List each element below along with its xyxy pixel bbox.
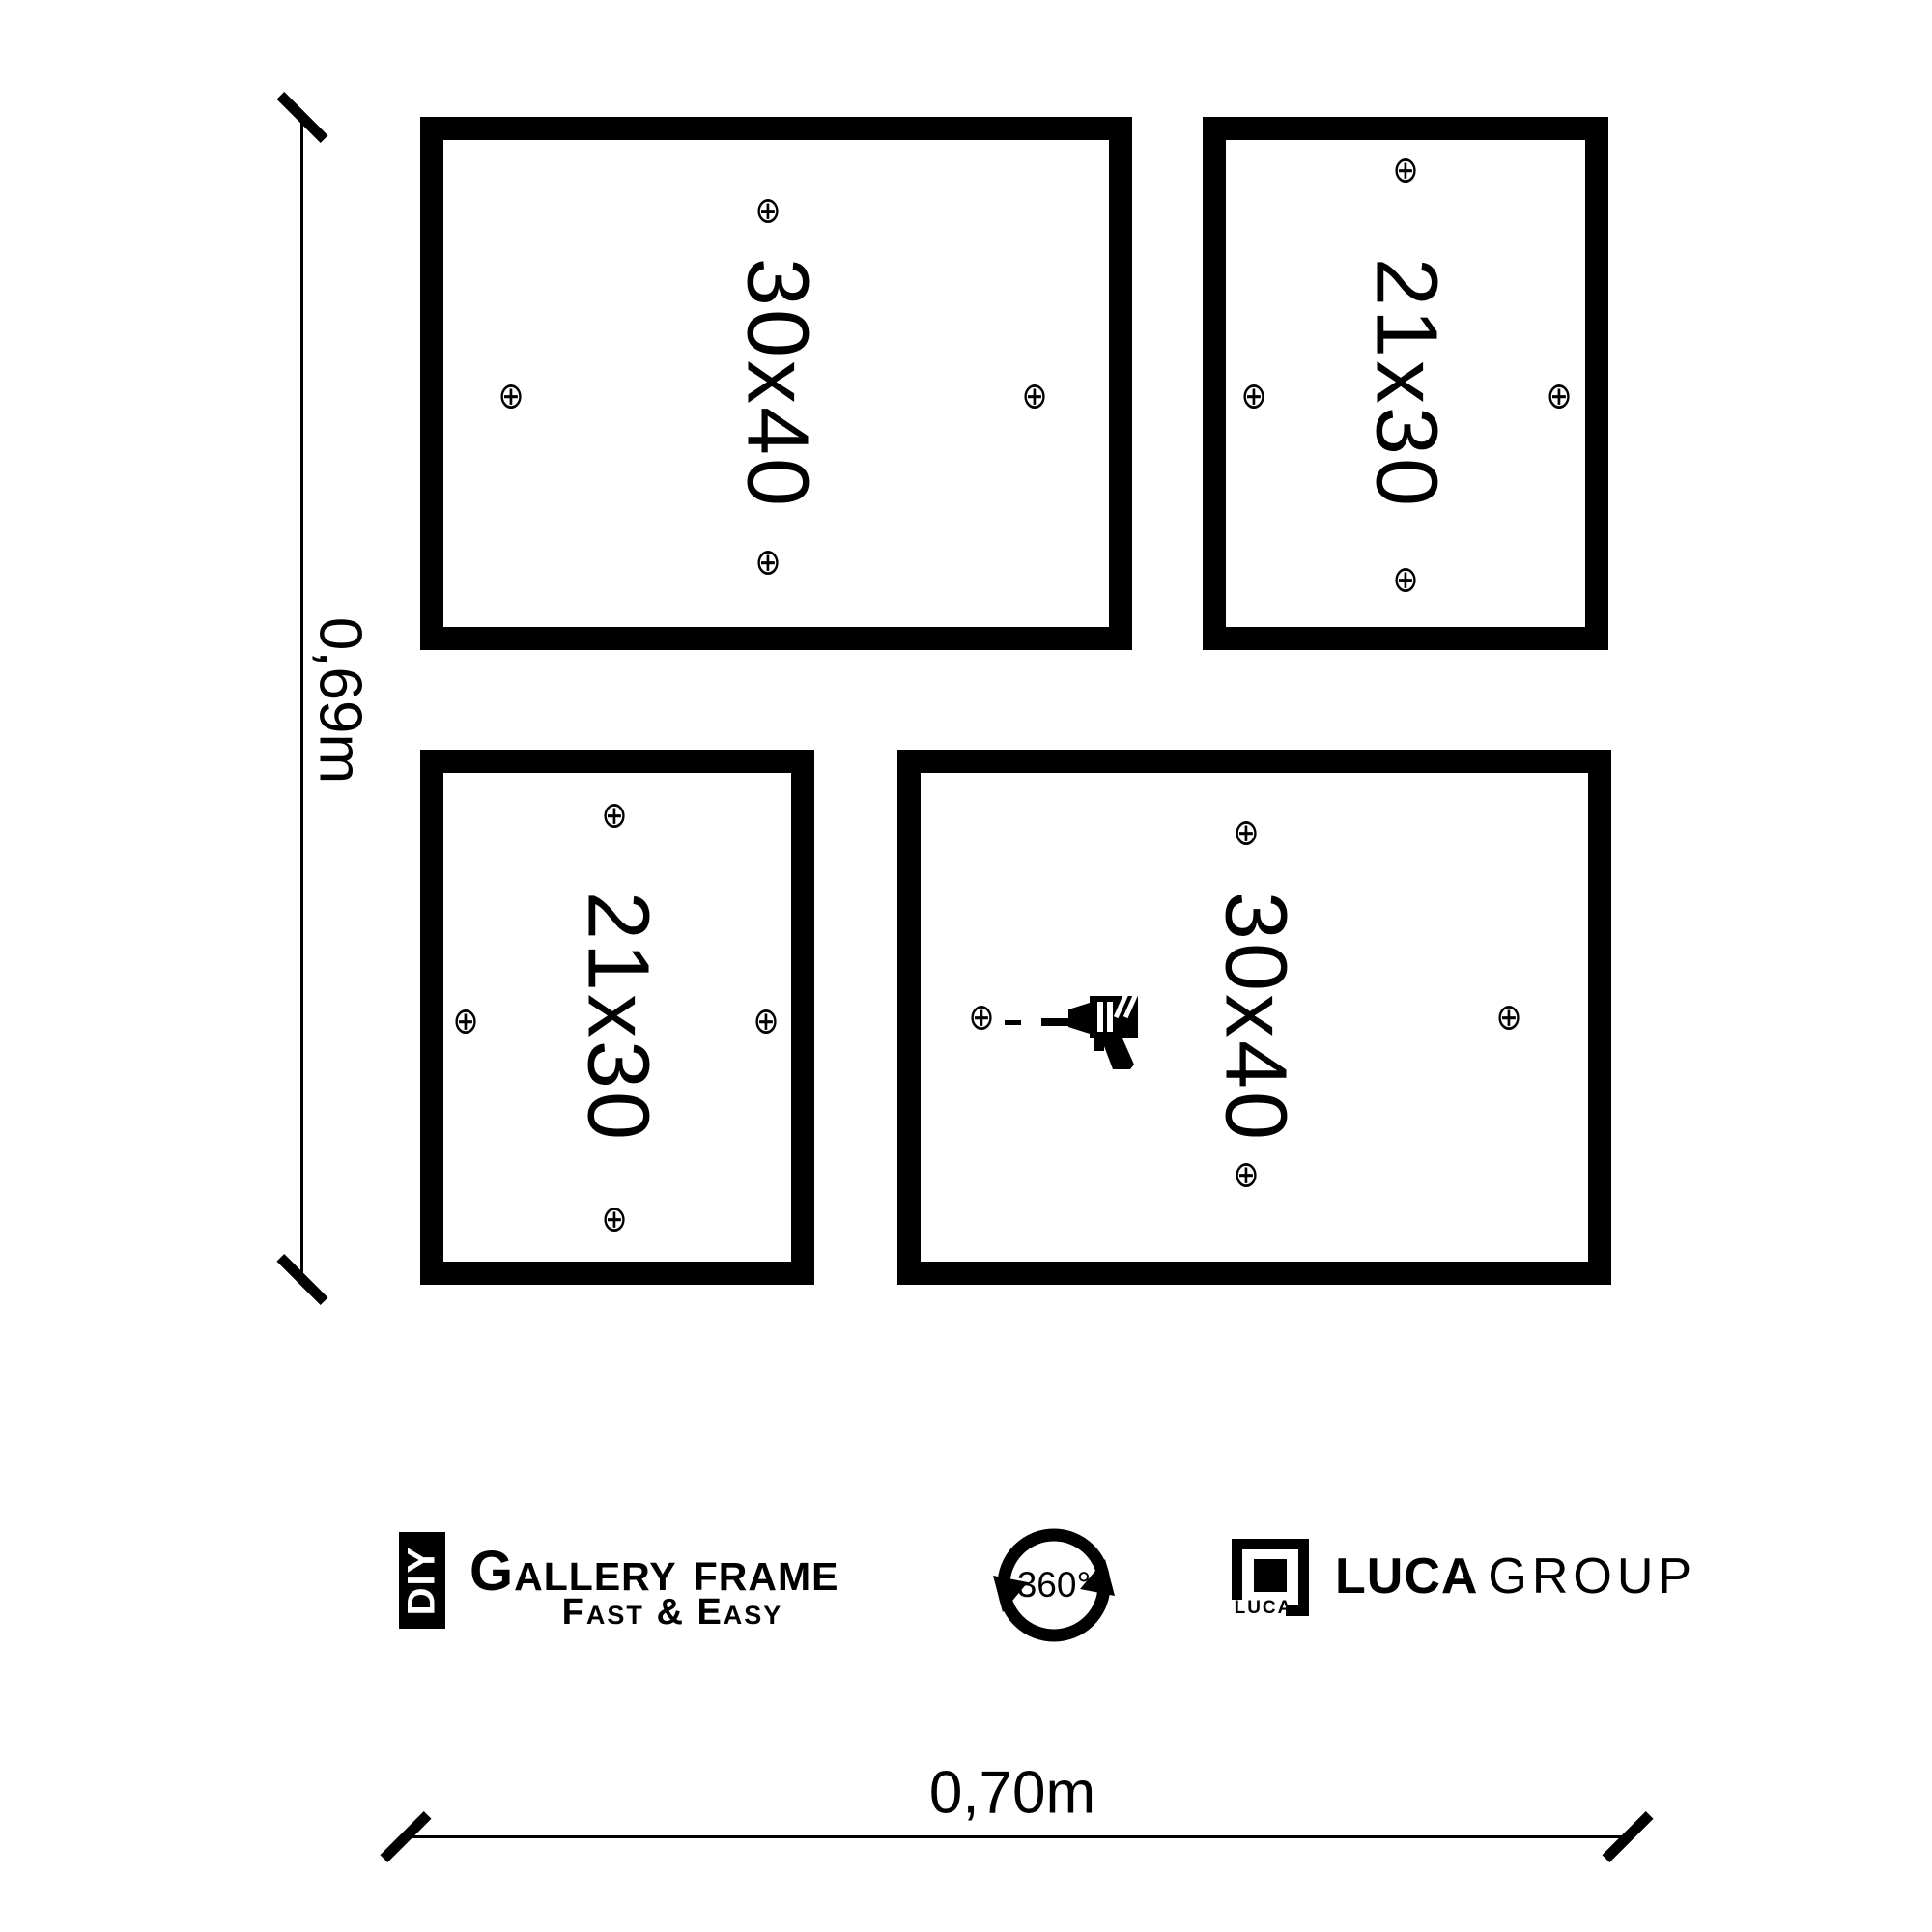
gallery-frame-layout-diagram: 0,69m 0,70m 30x40 21x30 21x30 30x40 ⊕ ⊕ … bbox=[0, 0, 1932, 1932]
width-dimension-line bbox=[406, 1835, 1628, 1838]
crosshair-marker: ⊕ bbox=[1543, 377, 1576, 415]
crosshair-marker: ⊕ bbox=[1018, 377, 1051, 415]
luca-logo-square bbox=[1254, 1559, 1287, 1592]
crosshair-marker: ⊕ bbox=[1492, 998, 1525, 1037]
crosshair-marker: ⊕ bbox=[750, 1002, 782, 1040]
luca-logo-frame bbox=[1298, 1539, 1309, 1616]
crosshair-marker: ⊕ bbox=[752, 543, 784, 582]
width-dimension-label: 0,70m bbox=[929, 1759, 1095, 1828]
height-dimension-line bbox=[300, 118, 303, 1280]
diy-badge-label: DIY bbox=[401, 1546, 444, 1616]
crosshair-marker: ⊕ bbox=[752, 191, 784, 230]
frame-size-label: 21x30 bbox=[568, 892, 668, 1143]
height-dimension-label: 0,69m bbox=[306, 617, 375, 783]
crosshair-marker: ⊕ bbox=[495, 377, 527, 415]
company-name-bold: LUCA bbox=[1335, 1548, 1478, 1605]
luca-logo-frame bbox=[1232, 1539, 1309, 1549]
crosshair-marker: ⊕ bbox=[1389, 151, 1422, 189]
crosshair-marker: ⊕ bbox=[449, 1002, 482, 1040]
frame-size-label: 21x30 bbox=[1356, 258, 1456, 509]
frame-size-label: 30x40 bbox=[1205, 892, 1304, 1143]
crosshair-marker: ⊕ bbox=[965, 998, 998, 1037]
luca-logo-text: LUCA bbox=[1232, 1598, 1295, 1619]
rotation-360-icon: 360° bbox=[991, 1522, 1117, 1648]
frame-size-label: 30x40 bbox=[726, 258, 826, 509]
crosshair-marker: ⊕ bbox=[598, 1200, 631, 1238]
diy-badge: DIY bbox=[399, 1532, 445, 1629]
company-name-light: GROUP bbox=[1488, 1548, 1696, 1605]
crosshair-marker: ⊕ bbox=[1230, 1155, 1263, 1194]
rotation-360-label: 360° bbox=[991, 1522, 1117, 1648]
crosshair-marker: ⊕ bbox=[1230, 813, 1263, 852]
drill-icon bbox=[1005, 983, 1140, 1070]
crosshair-marker: ⊕ bbox=[1237, 377, 1270, 415]
product-tagline: Fast & Easy bbox=[469, 1592, 875, 1634]
company-name: LUCAGROUP bbox=[1335, 1548, 1696, 1605]
crosshair-marker: ⊕ bbox=[598, 796, 631, 835]
luca-logo: LUCA bbox=[1232, 1539, 1309, 1616]
luca-logo-frame bbox=[1232, 1539, 1242, 1600]
crosshair-marker: ⊕ bbox=[1389, 560, 1422, 599]
